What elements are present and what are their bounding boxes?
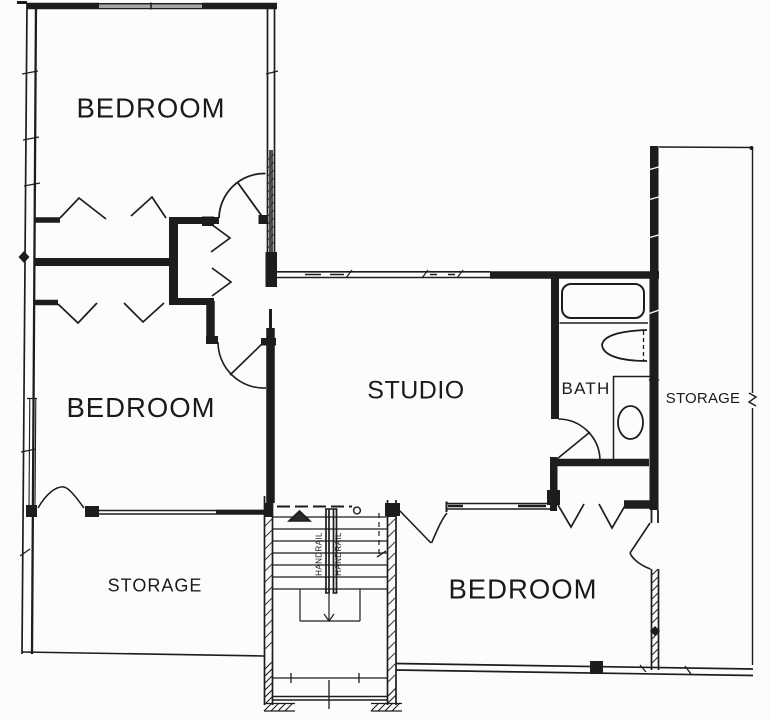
svg-text:BATH: BATH <box>562 379 611 398</box>
svg-text:HANDRAIL: HANDRAIL <box>315 532 324 576</box>
svg-text:STUDIO: STUDIO <box>367 377 464 405</box>
svg-text:BEDROOM: BEDROOM <box>76 93 225 124</box>
svg-text:STORAGE: STORAGE <box>108 576 203 596</box>
svg-text:STORAGE: STORAGE <box>666 390 740 407</box>
svg-text:BEDROOM: BEDROOM <box>448 574 597 605</box>
svg-text:HANDRAIL: HANDRAIL <box>334 532 343 576</box>
svg-text:BEDROOM: BEDROOM <box>66 392 215 423</box>
